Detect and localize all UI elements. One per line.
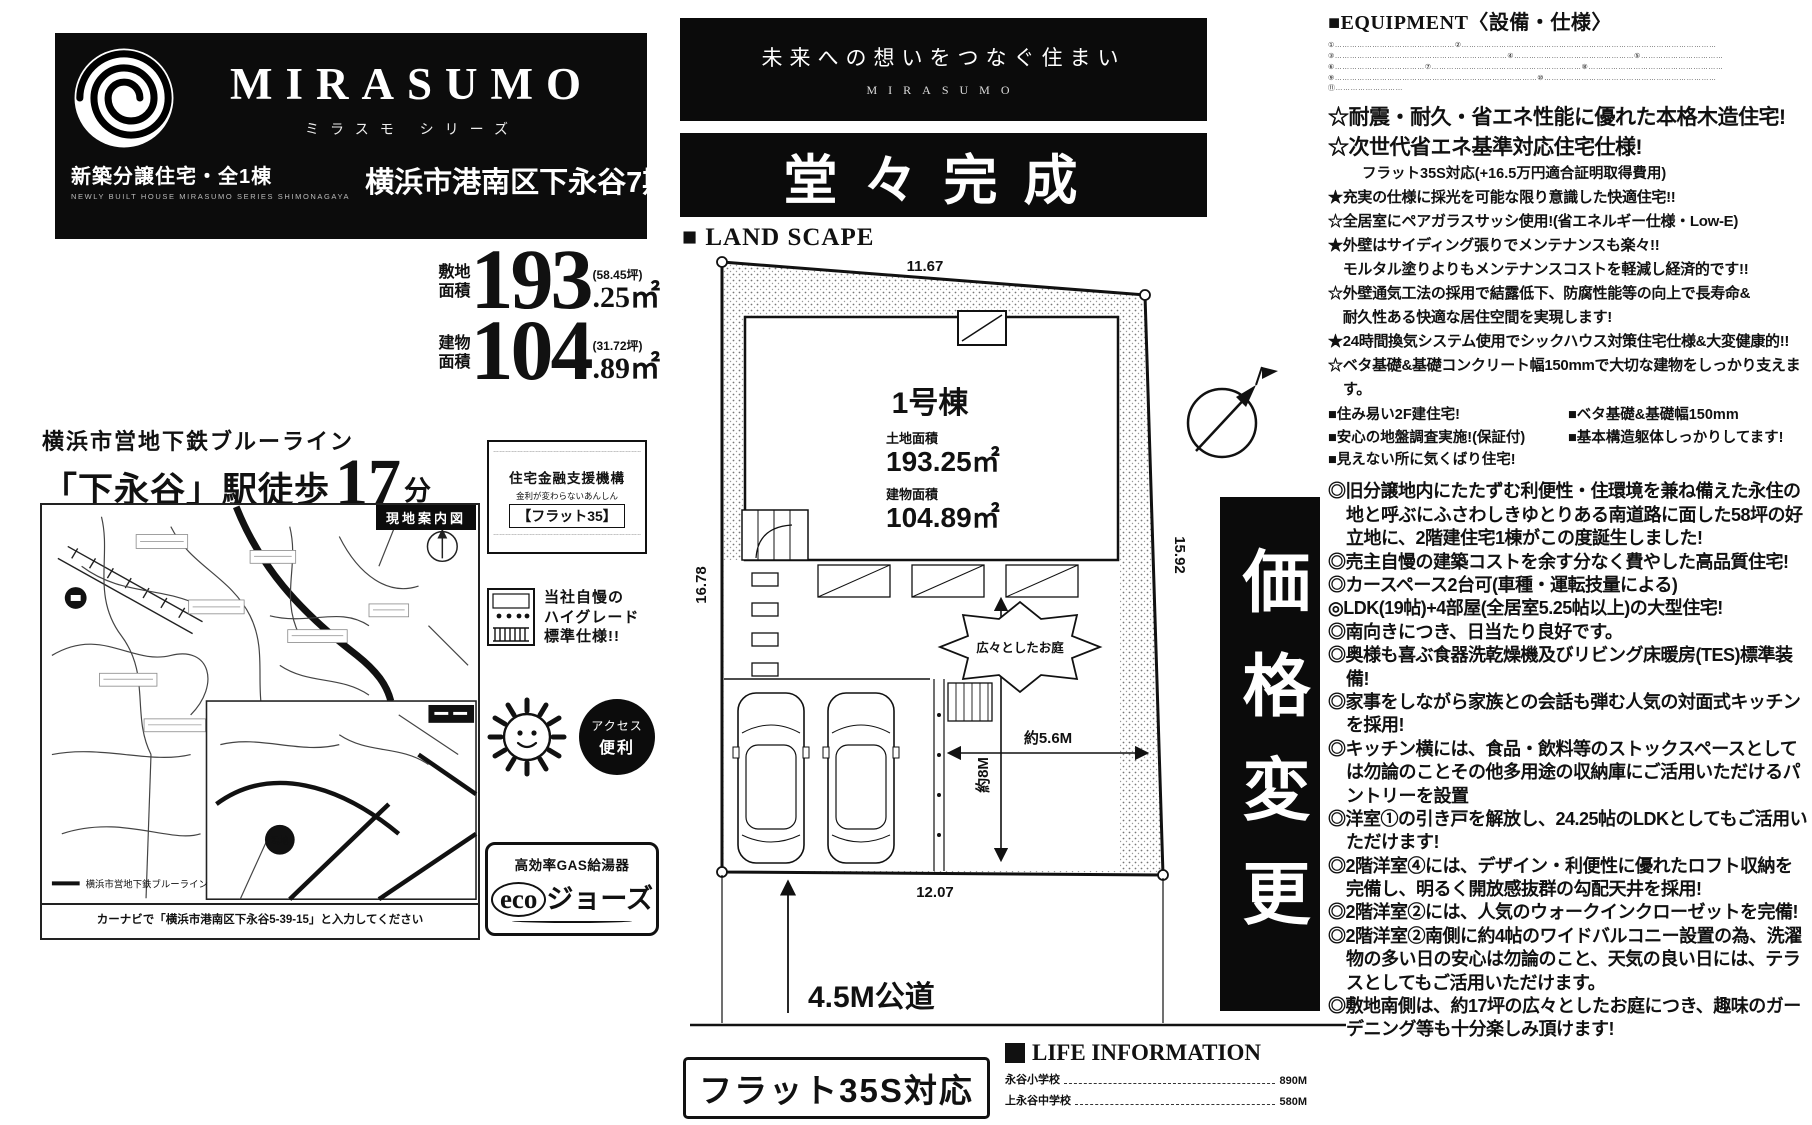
area-map: 現地案内図 — [40, 503, 480, 940]
plan-compass-icon — [1188, 367, 1278, 457]
hero-brand: MIRASUMO — [866, 83, 1020, 98]
feature-headline-1: ☆耐震・耐久・省エネ性能に優れた本格木造住宅! — [1328, 103, 1808, 133]
feature-check-item: ■ベタ基礎&基礎幅150mm — [1568, 404, 1808, 426]
high-grade-text: 当社自慢の ハイグレード 標準仕様!! — [544, 588, 639, 647]
car-icon — [733, 693, 809, 863]
feature-check-item: ■基本構造躯体しっかりしてます! — [1568, 427, 1808, 449]
plan-building-label: 建物面積 — [886, 487, 939, 502]
hero-tagline: 未来への想いをつなぐ住まい — [762, 42, 1126, 72]
plan-building-area: 104.89㎡ — [886, 501, 1000, 533]
selling-point-list: ◎旧分譲地内にたたずむ利便性・住環境を兼ね備えた永住の地と呼ぶにふさわしきゆとり… — [1328, 480, 1808, 1041]
walk-minutes-unit: 分 — [404, 469, 431, 508]
equipment-heading: ■EQUIPMENT〈設備・仕様〉 — [1328, 6, 1808, 35]
svg-text:現地: 現地 — [271, 835, 289, 846]
price-change-text: 価格変更 — [1236, 546, 1304, 962]
land-area-label: 敷地面積 — [438, 264, 470, 301]
flat35s-note: フラット35S対応(+16.5万円適合証明取得費用) — [1328, 163, 1808, 186]
life-row: 上永谷中学校 580M — [1005, 1092, 1307, 1108]
flat35-badge: …………………………………………………………………………………………………………… — [487, 440, 647, 554]
feature-star-item: ★充実の仕様に採光を可能な限り意識した快適住宅!! — [1328, 186, 1808, 210]
completion-banner: 堂々完成 — [680, 133, 1207, 217]
flat35s-box: フラット35S対応 — [683, 1057, 990, 1119]
brand-banner: MIRASUMO ミラスモ シリーズ 新築分譲住宅・全1棟 NEWLY BUIL… — [55, 33, 647, 239]
dim-west: 16.78 — [693, 566, 710, 604]
eco-jozu-badge: 高効率GAS給湯器 ecoジョーズ — [485, 842, 659, 936]
gas-heater-label: 高効率GAS給湯器 — [488, 854, 656, 874]
flat35-fineprint-top: …………………………………………………………………………………………………………… — [493, 448, 641, 464]
building-area-value: 104 — [471, 317, 591, 384]
building-area-detail: (31.72坪) .89㎡ — [593, 337, 661, 384]
brand-top-row: MIRASUMO ミラスモ シリーズ — [71, 45, 631, 151]
land-area-detail: (58.45坪) .25㎡ — [593, 266, 661, 313]
facility-distance: 890M — [1279, 1075, 1307, 1087]
garden-width-dim: 約5.6M — [1024, 729, 1072, 747]
eco-underline-decoration — [512, 919, 632, 923]
selling-point-item: ◎敷地南側は、約17坪の広々としたお庭につき、趣味のガーデニング等も十分楽しみ頂… — [1328, 995, 1808, 1042]
fine-print-line: ⑪……………………… — [1328, 84, 1808, 95]
flat35-fineprint-bottom: …………………………………………………………………………………………………………… — [493, 531, 641, 547]
life-information: LIFE INFORMATION 永谷小学校 890M 上永谷中学校 580M — [1005, 1040, 1307, 1108]
plan-land-area: 193.25㎡ — [886, 445, 1000, 477]
selling-point-item: ◎キッチン横には、食品・飲料等のストックスペースとしては勿論のことその他多用途の… — [1328, 738, 1808, 808]
dim-north: 11.67 — [907, 258, 944, 275]
dim-east: 15.92 — [1171, 536, 1188, 574]
garden-label: 広々としたお庭 — [976, 640, 1064, 655]
black-square-icon — [1005, 1043, 1025, 1063]
plan-land-label: 土地面積 — [886, 431, 939, 446]
completion-text: 堂々完成 — [784, 136, 1104, 215]
flat35-name: 【フラット35】 — [509, 504, 625, 528]
selling-point-item: ◎南向きにつき、日当たり良好です。 — [1328, 621, 1808, 644]
walk-minutes: 17 — [335, 458, 401, 508]
feature-star-item: 耐久性ある快適な居住空間を実現します! — [1328, 306, 1808, 330]
brand-bottom-row: 新築分譲住宅・全1棟 NEWLY BUILT HOUSE MIRASUMO SE… — [71, 159, 631, 201]
feature-star-list: ★充実の仕様に採光を可能な限り意識した快適住宅!!☆全居室にペアガラスサッシ使用… — [1328, 186, 1808, 402]
selling-point-item: ◎2階洋室②には、人気のウォークインクローゼットを完備! — [1328, 901, 1808, 924]
building-area-stat: 建物面積 104 (31.72坪) .89㎡ — [388, 317, 660, 384]
feature-star-item: モルタル塗りよりもメンテナンスコストを軽減し経済的です!! — [1328, 258, 1808, 282]
road-label: 4.5M公道 — [808, 981, 935, 1014]
selling-point-item: ◎洋室①の引き戸を解放し、24.25帖のLDKとしてもご活用いただけます! — [1328, 808, 1808, 855]
facility-distance: 580M — [1279, 1096, 1307, 1108]
access-circle-stamp: アクセス 便利 — [579, 699, 655, 775]
property-type-main: 新築分譲住宅・全1棟 — [71, 160, 350, 189]
fine-print-line: ⑨………………………………………………………………………⑩……………………………… — [1328, 74, 1808, 85]
map-inset: 現地 — [206, 701, 476, 899]
property-address: 横浜市港南区下永谷7期 — [365, 159, 671, 201]
selling-point-item: ◎売主自慢の建築コストを余す分なく費やした高品質住宅! — [1328, 551, 1808, 574]
feature-headline-2: ☆次世代省エネ基準対応住宅仕様! — [1328, 133, 1808, 163]
flat35-slogan: 金利が変わらないあんしん — [493, 490, 641, 502]
feature-star-item: ☆全居室にペアガラスサッシ使用!(省エネルギー仕様・Low-E) — [1328, 210, 1808, 234]
brand-series: ミラスモ シリーズ — [193, 119, 631, 139]
car-navi-caption: カーナビで「横浜市港南区下永谷5-39-15」と入力してください — [42, 903, 478, 935]
selling-point-item: ◎2階洋室②南側に約4帖のワイドバルコニー設置の為、洗濯物の多い日の安心は勿論の… — [1328, 925, 1808, 995]
property-type: 新築分譲住宅・全1棟 NEWLY BUILT HOUSE MIRASUMO SE… — [71, 160, 350, 201]
selling-point-item: ◎旧分譲地内にたたずむ利便性・住環境を兼ね備えた永住の地と呼ぶにふさわしきゆとり… — [1328, 480, 1808, 550]
feature-star-item: ★外壁はサイディング張りでメンテナンスも楽々!! — [1328, 234, 1808, 258]
map-compass-icon — [427, 529, 457, 562]
facility-name: 永谷小学校 — [1005, 1071, 1060, 1087]
garden-depth-dim: 約8M — [974, 757, 992, 793]
life-row: 永谷小学校 890M — [1005, 1071, 1307, 1087]
selling-point-item: ◎奥様も喜ぶ食器洗乾燥機及びリビング床暖房(TES)標準装備! — [1328, 644, 1808, 691]
feature-check-item: ■住み易い2F建住宅! — [1328, 404, 1568, 426]
high-grade-badge: 当社自慢の ハイグレード 標準仕様!! — [487, 588, 659, 647]
fine-print-line: ③……………………………………………………………④………………………………………… — [1328, 52, 1808, 63]
mirasumo-spiral-logo-icon — [71, 45, 177, 151]
building-area-label: 建物面積 — [438, 335, 470, 372]
dim-south: 12.07 — [916, 884, 954, 901]
equipment-fine-print: ①…………………………………………②…………………………………………………………… — [1328, 41, 1808, 95]
price-change-banner: 価格変更 — [1220, 497, 1320, 1011]
unit-name: 1号棟 — [892, 387, 970, 420]
street-map-graphic: 現地 横浜市営地下鉄ブルーライン — [42, 505, 478, 903]
life-heading: LIFE INFORMATION — [1005, 1040, 1307, 1066]
feature-check-item: ■安心の地盤調査実施!(保証付) — [1328, 427, 1568, 449]
right-column: ■EQUIPMENT〈設備・仕様〉 ①…………………………………………②…………… — [1328, 6, 1808, 1042]
land-area-decimal: .25㎡ — [593, 283, 661, 313]
car-icon — [823, 693, 899, 863]
blue-line-legend: 横浜市営地下鉄ブルーライン — [86, 878, 208, 889]
selling-point-item: ◎2階洋室④には、デザイン・利便性に優れたロフト収納を完備し、明るく開放感抜群の… — [1328, 855, 1808, 902]
dotted-leader — [1064, 1083, 1275, 1084]
landscape-heading: ■ LAND SCAPE — [682, 224, 874, 252]
map-title-badge: 現地案内図 — [376, 505, 476, 530]
fine-print-line: ①…………………………………………②…………………………………………………………… — [1328, 41, 1808, 52]
access-badge: アクセス 便利 — [487, 697, 663, 777]
selling-point-item: ◎カースペース2台可(車種・運転技量による) — [1328, 574, 1808, 597]
kitchen-spec-icon — [487, 588, 535, 646]
feature-star-item: ☆ベタ基礎&基礎コンクリート幅150mmで大切な建物をしっかり支えます。 — [1328, 354, 1808, 402]
flat35-org: 住宅金融支援機構 — [493, 467, 641, 487]
selling-point-item: ◎家事をしながら家族との会話も弾む人気の対面式キッチンを採用! — [1328, 691, 1808, 738]
hero-tagline-box: 未来への想いをつなぐ住まい MIRASUMO — [680, 18, 1207, 121]
brand-names: MIRASUMO ミラスモ シリーズ — [193, 58, 631, 139]
feature-check-item: ■見えない所に気くばり住宅! — [1328, 449, 1568, 471]
facility-name: 上永谷中学校 — [1005, 1092, 1071, 1108]
dotted-leader — [1075, 1104, 1275, 1105]
life-rows: 永谷小学校 890M 上永谷中学校 580M — [1005, 1071, 1307, 1108]
smiling-sun-icon — [487, 697, 567, 777]
fine-print-line: ⑥………………………………⑦……………………………………………………⑧……………… — [1328, 63, 1808, 74]
feature-check-grid: ■住み易い2F建住宅!■ベタ基礎&基礎幅150mm■安心の地盤調査実施!(保証付… — [1328, 404, 1808, 471]
eco-jozu-logo: ecoジョーズ — [488, 877, 656, 917]
selling-point-item: ◎LDK(19帖)+4部屋(全居室5.25帖以上)の大型住宅! — [1328, 597, 1808, 620]
real-estate-flyer: MIRASUMO ミラスモ シリーズ 新築分譲住宅・全1棟 NEWLY BUIL… — [0, 0, 1812, 1125]
building-area-decimal: .89㎡ — [593, 354, 661, 384]
feature-star-item: ☆外壁通気工法の採用で結露低下、防腐性能等の向上で長寿命& — [1328, 282, 1808, 306]
property-type-romaji: NEWLY BUILT HOUSE MIRASUMO SERIES SHIMON… — [71, 192, 350, 201]
brand-name: MIRASUMO — [193, 58, 631, 110]
area-stats: 敷地面積 193 (58.45坪) .25㎡ 建物面積 104 (31.72坪)… — [388, 246, 660, 384]
feature-star-item: ★24時間換気システム使用でシックハウス対策住宅仕様&大変健康的!! — [1328, 330, 1808, 354]
